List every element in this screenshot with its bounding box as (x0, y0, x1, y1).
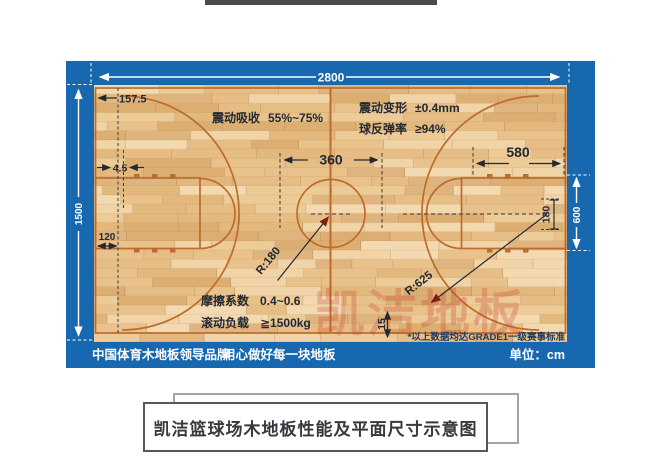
spec-rolling-load-value: ≧1500kg (260, 316, 311, 330)
dim-15: 15 (376, 318, 388, 330)
dim-4-5: 4.5 (113, 163, 128, 175)
footnote: *以上数据均达GRADE1一级赛事标准 (408, 331, 566, 343)
spec-ball-rebound-value: ≥94% (415, 122, 446, 136)
spec-shock-absorption-value: 55%~75% (268, 111, 323, 125)
spec-vibration-deform-value: ±0.4mm (415, 101, 460, 115)
dim-360: 360 (319, 152, 343, 168)
spec-ball-rebound-label: 球反弹率 (359, 121, 407, 136)
dim-2800: 2800 (318, 71, 345, 85)
dim-600: 600 (572, 206, 583, 223)
footer-slogan-left: 中国体育木地板领导品牌 (92, 347, 230, 362)
dim-120: 120 (99, 232, 116, 243)
footer-slogan-right: 用心做好每一块地板 (222, 347, 336, 362)
footer-unit: 单位：cm (509, 347, 565, 362)
caption-box: 凯洁篮球场木地板性能及平面尺寸示意图 (143, 402, 488, 452)
spec-friction-label: 摩擦系数 (201, 293, 250, 308)
spec-friction-value: 0.4~0.6 (260, 294, 301, 308)
spec-rolling-load-label: 滚动负载 (201, 315, 249, 330)
dim-157-5: 157.5 (119, 94, 147, 106)
dim-1500: 1500 (74, 202, 85, 225)
dim-580: 580 (506, 144, 530, 160)
spec-vibration-deform-label: 震动变形 (359, 100, 407, 115)
dim-180: 180 (541, 206, 553, 224)
spec-shock-absorption-label: 震动吸收 (212, 110, 260, 125)
page: 凯洁地板 (0, 0, 665, 468)
caption-title: 凯洁篮球场木地板性能及平面尺寸示意图 (154, 415, 478, 440)
